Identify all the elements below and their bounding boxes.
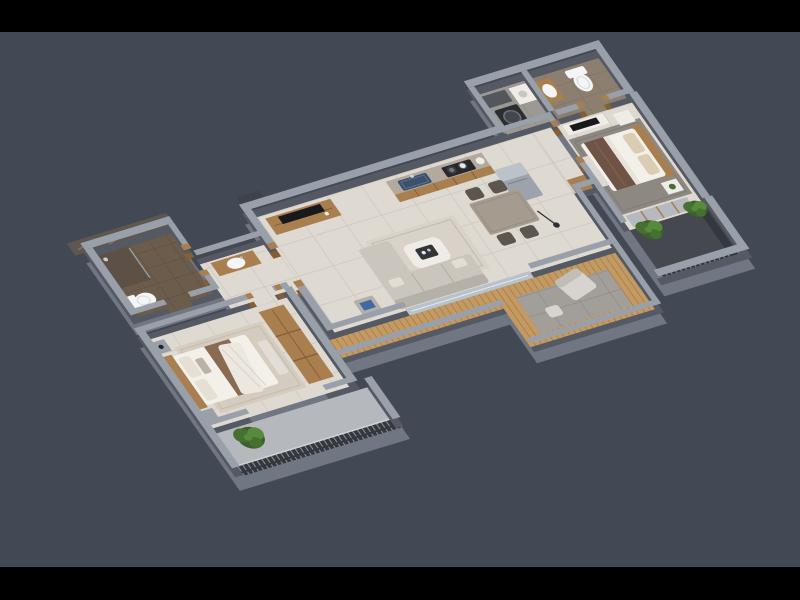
floor-plan-render (0, 0, 800, 600)
letterbox-bottom (0, 567, 800, 600)
letterbox-top (0, 0, 800, 32)
